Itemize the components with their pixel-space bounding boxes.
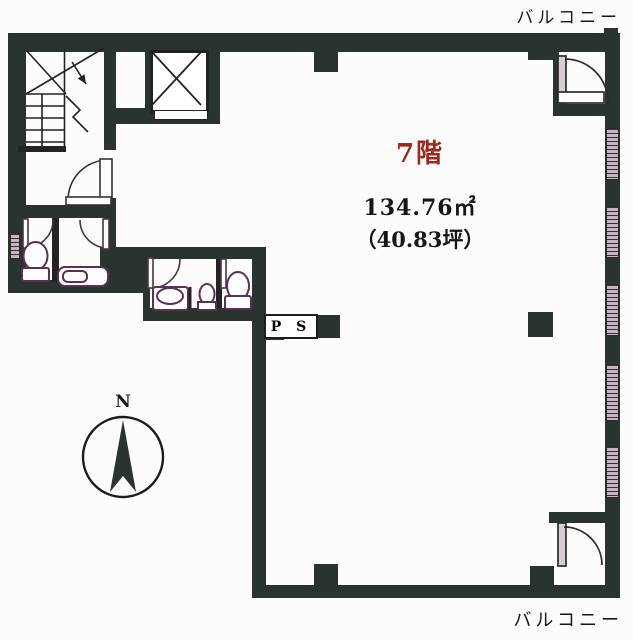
wall-segment bbox=[553, 40, 559, 106]
window bbox=[606, 128, 619, 180]
toilet-icon bbox=[22, 242, 49, 281]
wall-segment bbox=[113, 247, 256, 259]
window bbox=[10, 233, 20, 259]
urinal-icon bbox=[198, 284, 216, 310]
wall-segment bbox=[104, 198, 116, 216]
window bbox=[606, 284, 619, 336]
wall-segment bbox=[143, 308, 266, 321]
hand-basin-icon bbox=[153, 287, 188, 310]
floor-plan: P S bbox=[0, 0, 633, 640]
column bbox=[528, 40, 553, 60]
column bbox=[528, 312, 553, 337]
wall-segment bbox=[216, 259, 222, 308]
unit-info: 7階 134.76㎡ （40.83坪） bbox=[328, 133, 512, 254]
door-toilet-left bbox=[23, 219, 53, 248]
area-tsubo: （40.83坪） bbox=[328, 224, 512, 254]
column bbox=[314, 564, 338, 586]
wall-segment bbox=[553, 104, 620, 116]
elevator-cab bbox=[150, 50, 209, 113]
toilet-icon bbox=[225, 272, 251, 309]
column bbox=[318, 315, 340, 338]
pipe-shaft-label: P S bbox=[271, 319, 312, 335]
column bbox=[314, 50, 338, 72]
wall-segment bbox=[8, 205, 116, 218]
floor-label: 7階 bbox=[328, 133, 512, 170]
staircase-icon bbox=[26, 48, 104, 146]
wall-segment bbox=[104, 40, 116, 150]
window bbox=[606, 446, 619, 498]
wall-segment bbox=[143, 259, 150, 308]
balcony-label-bottom: バルコニー bbox=[513, 606, 623, 632]
wall-segment bbox=[252, 585, 620, 598]
wall-segment bbox=[549, 512, 620, 523]
window bbox=[606, 206, 619, 258]
compass-icon bbox=[83, 417, 163, 497]
door-washroom bbox=[148, 258, 180, 288]
area-sqm: 134.76㎡ bbox=[328, 190, 512, 222]
balcony-label-top: バルコニー bbox=[516, 3, 621, 28]
pipe-shaft-box: P S bbox=[264, 314, 318, 339]
wall-segment bbox=[52, 218, 59, 282]
wall-segment bbox=[252, 247, 266, 598]
window bbox=[606, 364, 619, 421]
compass-north-label: N bbox=[102, 392, 144, 412]
column bbox=[530, 566, 554, 586]
elevator-sill bbox=[154, 110, 208, 120]
wall-segment bbox=[18, 146, 66, 152]
door-balcony-top bbox=[558, 56, 608, 103]
door-balcony-bottom bbox=[558, 523, 602, 566]
wall-segment bbox=[8, 280, 115, 293]
wall-segment bbox=[8, 33, 611, 52]
